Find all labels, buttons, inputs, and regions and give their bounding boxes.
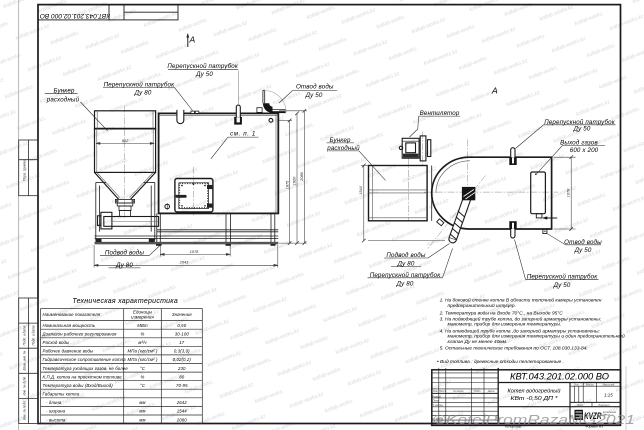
svg-text:манометр, прибор для измерения: манометр, прибор для измерения температу… — [448, 322, 562, 328]
svg-text:Масштаб: Масштаб — [603, 383, 615, 386]
svg-text:Перепускной патрубок: Перепускной патрубок — [370, 272, 441, 279]
svg-text:Ду 80: Ду 80 — [134, 89, 152, 96]
svg-text:%: % — [141, 332, 145, 337]
svg-text:Инв. № подл.: Инв. № подл. — [23, 400, 27, 420]
svg-text:80: 80 — [179, 374, 185, 379]
svg-text:17: 17 — [179, 340, 185, 345]
svg-text:0,3(3,0): 0,3(3,0) — [174, 349, 190, 354]
svg-text:Перепускной патрубок: Перепускной патрубок — [167, 63, 238, 70]
svg-text:70-95: 70-95 — [176, 383, 188, 388]
svg-text:Ду 50: Ду 50 — [553, 282, 571, 289]
svg-text:902: 902 — [122, 138, 129, 143]
svg-text:манометр, прибор для измерения: манометр, прибор для измерения температу… — [448, 333, 625, 340]
svg-text:1078: 1078 — [190, 249, 199, 254]
svg-text:Ду 80: Ду 80 — [397, 260, 415, 267]
svg-text:Ду 50: Ду 50 — [195, 71, 213, 78]
svg-text:мм: мм — [139, 409, 145, 414]
svg-text:• Вид топлива : древесные от: • Вид топлива : древесные отходы пеллети… — [437, 359, 564, 365]
svg-text:м³/ч: м³/ч — [138, 340, 147, 345]
svg-text:Ду 50: Ду 50 — [574, 247, 592, 254]
svg-text:Ду 50: Ду 50 — [305, 92, 323, 99]
svg-text:расходный: расходный — [326, 145, 360, 152]
svg-text:см. п. 1: см. п. 1 — [230, 131, 256, 138]
svg-text:1920: 1920 — [292, 176, 297, 185]
svg-text:измерения: измерения — [131, 315, 154, 320]
svg-text:Температура уходящих газов, не: Температура уходящих газов, не более — [43, 366, 129, 371]
svg-text:Изм: Изм — [433, 390, 438, 393]
svg-text:мм: мм — [139, 417, 145, 422]
svg-text:Ду 50: Ду 50 — [573, 126, 591, 133]
svg-text:Ду 80: Ду 80 — [396, 280, 414, 287]
svg-text:Т. контр.: Т. контр. — [433, 404, 444, 407]
svg-text:Отвод воды: Отвод воды — [296, 84, 334, 91]
svg-text:Бункер: Бункер — [53, 88, 75, 95]
svg-text:А: А — [189, 35, 196, 45]
svg-text:Перв. примен.: Перв. примен. — [23, 158, 27, 181]
svg-text:1875: 1875 — [284, 180, 289, 189]
svg-text:Дата: Дата — [487, 390, 495, 393]
svg-text:Перепускной патрубок: Перепускной патрубок — [104, 81, 175, 88]
svg-text:2080: 2080 — [176, 417, 188, 422]
svg-text:230: 230 — [177, 366, 186, 371]
svg-text:А: А — [491, 86, 498, 96]
svg-text:Подп. и дата: Подп. и дата — [32, 325, 36, 345]
svg-text:°С: °С — [140, 383, 146, 388]
svg-text:№ докум.: № докум. — [453, 390, 464, 393]
svg-text:0,02(0,2): 0,02(0,2) — [173, 357, 192, 362]
svg-text:Выход газов: Выход газов — [560, 139, 598, 146]
svg-text:1544: 1544 — [358, 185, 363, 194]
svg-text:МВт: МВт — [137, 323, 148, 328]
svg-text:Температура воды (Вход/Выход): Температура воды (Вход/Выход) — [43, 383, 114, 388]
svg-text:Рабочее давление воды: Рабочее давление воды — [43, 349, 94, 354]
svg-text:Бункер: Бункер — [329, 137, 351, 144]
svg-text:Техническая характеристика: Техническая характеристика — [72, 298, 178, 305]
svg-text:Подвод воды: Подвод воды — [105, 250, 144, 257]
svg-text:Наименование показателя: Наименование показателя — [43, 312, 101, 317]
svg-text:30-100: 30-100 — [175, 332, 190, 337]
svg-text:МПа (кгс/см² ): МПа (кгс/см² ) — [127, 349, 157, 354]
svg-text:Подп.: Подп. — [474, 390, 481, 393]
svg-text:3. На подводящей трубе котла,: 3. На подводящей трубе котла, до запорно… — [440, 315, 602, 322]
svg-text:%: % — [141, 374, 145, 379]
svg-text:5. Остальные технические треб: 5. Остальные технические требования по О… — [440, 346, 588, 352]
svg-text:Вентилятор: Вентилятор — [420, 110, 460, 117]
svg-text:Подвод воды: Подвод воды — [386, 252, 425, 259]
svg-text:Перепускной патрубок: Перепускной патрубок — [527, 273, 598, 280]
svg-text:Ду 80: Ду 80 — [115, 262, 133, 269]
svg-text:Пров.: Пров. — [433, 400, 440, 403]
svg-text:Расход воды: Расход воды — [43, 340, 71, 345]
svg-text:Диапазон рабочего регулировани: Диапазон рабочего регулирования — [42, 332, 118, 337]
svg-text:МПа (кгс/см² ): МПа (кгс/см² ) — [127, 357, 157, 362]
svg-text:предохранительный штуцер.: предохранительный штуцер. — [448, 302, 516, 309]
svg-text:Отвод воды: Отвод воды — [564, 239, 602, 246]
svg-text:Номинальная мощность: Номинальная мощность — [43, 323, 96, 328]
svg-text:- ширина: - ширина — [46, 409, 66, 414]
svg-text:КВТ.043.201.02.000 ВО: КВТ.043.201.02.000 ВО — [510, 371, 609, 381]
svg-text:Взам. инв. №: Взам. инв. № — [23, 350, 27, 370]
svg-text:клапан Ду не менее 40мм.: клапан Ду не менее 40мм. — [448, 339, 508, 345]
svg-text:Листов 1: Листов 1 — [597, 404, 610, 407]
svg-text:КВТ.043.201.02.000 ВО: КВТ.043.201.02.000 ВО — [40, 12, 110, 19]
svg-text:Подп. и дата: Подп. и дата — [23, 325, 27, 345]
svg-text:©KotelPromRazaMG2021: ©KotelPromRazaMG2021 — [433, 412, 635, 427]
svg-text:0,50: 0,50 — [177, 323, 186, 328]
svg-text:- длина: - длина — [46, 400, 62, 405]
svg-text:Котел водогрейный: Котел водогрейный — [508, 387, 562, 394]
svg-text:Масса: Масса — [586, 383, 594, 386]
svg-text:К.П.Д. котла на проектном топл: К.П.Д. котла на проектном топливе — [43, 374, 123, 379]
svg-text:Лит.: Лит. — [573, 383, 580, 386]
svg-text:2642: 2642 — [176, 400, 188, 405]
svg-text:расходный: расходный — [46, 96, 80, 103]
svg-text:600 х 200: 600 х 200 — [570, 147, 599, 154]
svg-text:Разраб.: Разраб. — [433, 395, 442, 398]
svg-text:Лист: Лист — [438, 390, 445, 393]
svg-text:2643: 2643 — [179, 260, 189, 265]
svg-text:мм: мм — [139, 400, 145, 405]
svg-text:Значения: Значения — [172, 312, 192, 317]
svg-text:КВт -0,50 ДП *: КВт -0,50 ДП * — [511, 396, 559, 402]
svg-text:1:15: 1:15 — [604, 393, 613, 398]
svg-text:2. Температура воды на Входе: 2. Температура воды на Входе 70°С., на В… — [439, 311, 564, 317]
svg-text:2080: 2080 — [299, 171, 304, 181]
svg-text:1078: 1078 — [566, 188, 571, 197]
svg-text:- высота: - высота — [46, 417, 66, 422]
svg-text:Инв. № дубл.: Инв. № дубл. — [23, 376, 27, 396]
svg-text:Лист: Лист — [576, 404, 583, 407]
svg-text:1544: 1544 — [177, 409, 188, 414]
svg-text:°С: °С — [140, 366, 146, 371]
svg-text:Габариты котла: Габариты котла — [43, 392, 80, 397]
svg-text:4. На отводящей трубе котла ,: 4. На отводящей трубе котла ,до запорной… — [440, 327, 601, 334]
svg-text:1. На боковой стенке котла В: 1. На боковой стенке котла В области топ… — [440, 297, 602, 304]
svg-text:Гидравлическое сопротивление к: Гидравлическое сопротивление котла — [43, 357, 127, 362]
